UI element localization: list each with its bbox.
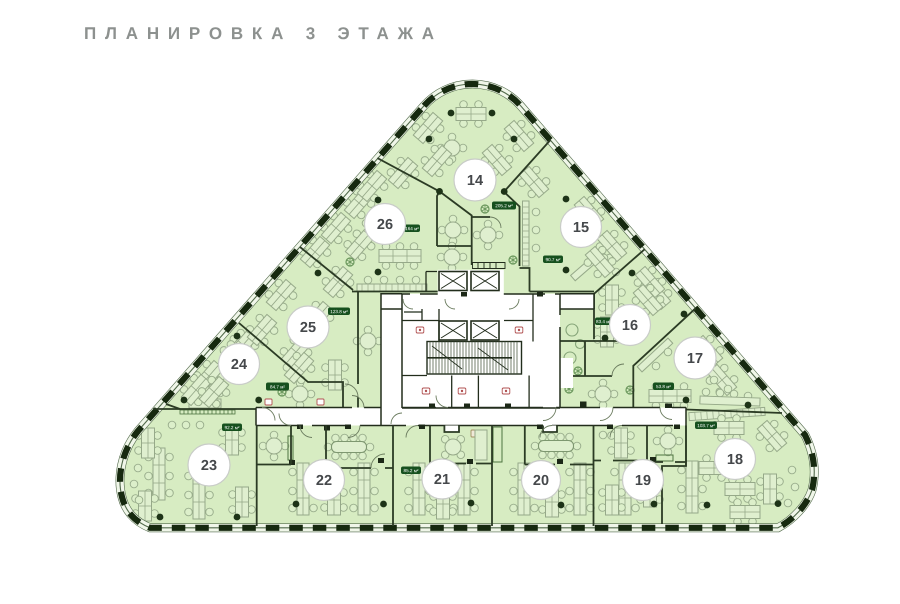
svg-text:16: 16 <box>622 318 638 334</box>
svg-text:24: 24 <box>231 357 247 373</box>
svg-text:92.2 м²: 92.2 м² <box>225 425 240 430</box>
svg-text:53.8 м²: 53.8 м² <box>656 384 671 389</box>
svg-text:26: 26 <box>377 217 393 233</box>
svg-text:18: 18 <box>727 452 743 468</box>
svg-text:21: 21 <box>434 472 450 488</box>
svg-text:85.2 м²: 85.2 м² <box>404 468 419 473</box>
svg-text:84.7 м²: 84.7 м² <box>270 384 285 389</box>
svg-text:ПЛАНИРОВКА 3 ЭТАЖА: ПЛАНИРОВКА 3 ЭТАЖА <box>84 24 443 43</box>
svg-text:22: 22 <box>316 473 332 489</box>
svg-text:23: 23 <box>201 458 217 474</box>
svg-text:15: 15 <box>573 220 589 236</box>
svg-text:20: 20 <box>533 473 549 489</box>
svg-text:19: 19 <box>635 473 651 489</box>
svg-text:103.7 м²: 103.7 м² <box>697 423 715 428</box>
svg-text:90.7 м²: 90.7 м² <box>546 257 561 262</box>
svg-text:17: 17 <box>687 351 703 367</box>
svg-text:25: 25 <box>300 320 316 336</box>
svg-text:205.2 м²: 205.2 м² <box>495 203 513 208</box>
svg-text:164 м²: 164 м² <box>405 226 419 231</box>
svg-text:123.8 м²: 123.8 м² <box>330 309 348 314</box>
svg-text:14: 14 <box>467 173 483 189</box>
